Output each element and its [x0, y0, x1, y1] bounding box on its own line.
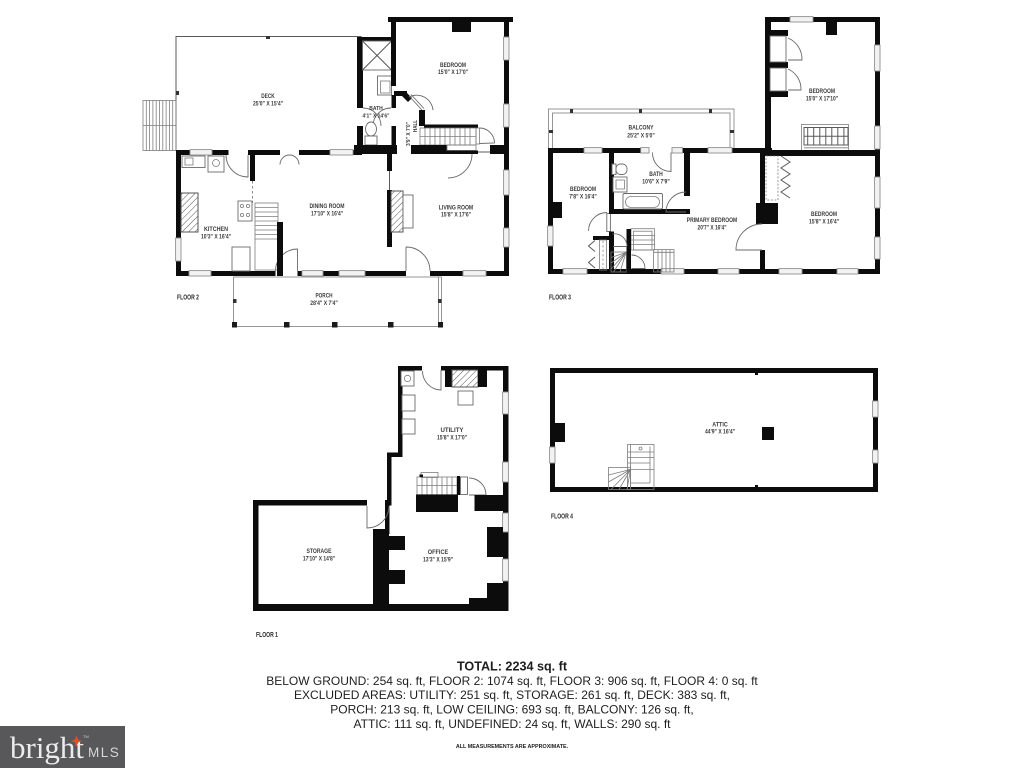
svg-text:20'7" X 16'4": 20'7" X 16'4" — [698, 226, 727, 232]
svg-text:TOTAL: 2234 sq. ft: TOTAL: 2234 sq. ft — [457, 660, 568, 674]
svg-text:15'8" X 16'4": 15'8" X 16'4" — [809, 220, 839, 226]
svg-text:BEDROOM: BEDROOM — [809, 88, 835, 95]
svg-text:10'3" X 16'4": 10'3" X 16'4" — [201, 235, 231, 241]
svg-text:HALL: HALL — [413, 119, 419, 132]
svg-text:KITCHEN: KITCHEN — [204, 226, 228, 233]
svg-text:BALCONY: BALCONY — [629, 125, 654, 132]
svg-text:bright: bright — [10, 730, 84, 765]
svg-text:17'10" X 14'8": 17'10" X 14'8" — [303, 557, 335, 563]
svg-text:BEDROOM: BEDROOM — [570, 186, 596, 193]
svg-text:FLOOR 4: FLOOR 4 — [551, 514, 573, 521]
svg-text:15'0" X 17'0": 15'0" X 17'0" — [438, 70, 468, 76]
svg-text:EXCLUDED AREAS: UTILITY: 251 s: EXCLUDED AREAS: UTILITY: 251 sq. ft, STO… — [294, 688, 730, 702]
svg-text:FLOOR 1: FLOOR 1 — [256, 632, 278, 639]
svg-text:PORCH: PORCH — [316, 293, 333, 300]
svg-text:BEDROOM: BEDROOM — [811, 211, 837, 218]
svg-text:ATTIC: 111 sq. ft, UNDEFINED:: ATTIC: 111 sq. ft, UNDEFINED: 24 sq. ft,… — [354, 717, 672, 731]
svg-text:LIVING ROOM: LIVING ROOM — [439, 205, 474, 212]
svg-text:4'1" X 14'6": 4'1" X 14'6" — [363, 114, 390, 120]
svg-text:15'8" X 17'0": 15'8" X 17'0" — [437, 436, 467, 442]
svg-text:PORCH: 213 sq. ft, LOW CEILING: PORCH: 213 sq. ft, LOW CEILING: 693 sq. … — [330, 703, 693, 717]
svg-text:DINING ROOM: DINING ROOM — [310, 203, 345, 210]
svg-text:OFFICE: OFFICE — [428, 549, 449, 556]
svg-text:TM: TM — [83, 734, 89, 739]
svg-text:15'8" X 17'6": 15'8" X 17'6" — [441, 213, 471, 219]
svg-text:25'0" X 15'4": 25'0" X 15'4" — [253, 102, 283, 108]
svg-text:BEDROOM: BEDROOM — [440, 62, 466, 69]
svg-text:28'4" X 7'4": 28'4" X 7'4" — [310, 301, 338, 307]
svg-text:3'9" X 7'0": 3'9" X 7'0" — [406, 122, 412, 146]
svg-text:17'10" X 16'4": 17'10" X 16'4" — [311, 212, 343, 218]
svg-text:STORAGE: STORAGE — [307, 548, 332, 555]
svg-text:DECK: DECK — [261, 93, 275, 100]
svg-text:15'0" X 17'10": 15'0" X 17'10" — [806, 97, 838, 103]
svg-text:ATTIC: ATTIC — [712, 422, 728, 429]
svg-text:7'8" X 16'4": 7'8" X 16'4" — [569, 195, 597, 201]
svg-text:10'6" X 7'9": 10'6" X 7'9" — [642, 180, 670, 186]
svg-text:BATH: BATH — [369, 106, 383, 112]
svg-text:FLOOR 2: FLOOR 2 — [177, 295, 199, 302]
svg-text:ALL MEASUREMENTS ARE APPROXIMA: ALL MEASUREMENTS ARE APPROXIMATE. — [456, 744, 569, 750]
svg-text:BATH: BATH — [649, 171, 663, 178]
svg-text:25'2" X 5'0": 25'2" X 5'0" — [627, 134, 655, 140]
svg-text:13'3" X 15'9": 13'3" X 15'9" — [423, 558, 453, 564]
svg-text:BELOW GROUND: 254 sq. ft, FLOO: BELOW GROUND: 254 sq. ft, FLOOR 2: 1074 … — [266, 674, 758, 688]
svg-text:MLS: MLS — [88, 745, 120, 760]
svg-text:UTILITY: UTILITY — [441, 427, 465, 434]
svg-text:PRIMARY BEDROOM: PRIMARY BEDROOM — [687, 217, 738, 224]
svg-text:44'9" X 16'4": 44'9" X 16'4" — [705, 430, 735, 436]
svg-text:FLOOR 3: FLOOR 3 — [549, 295, 571, 302]
